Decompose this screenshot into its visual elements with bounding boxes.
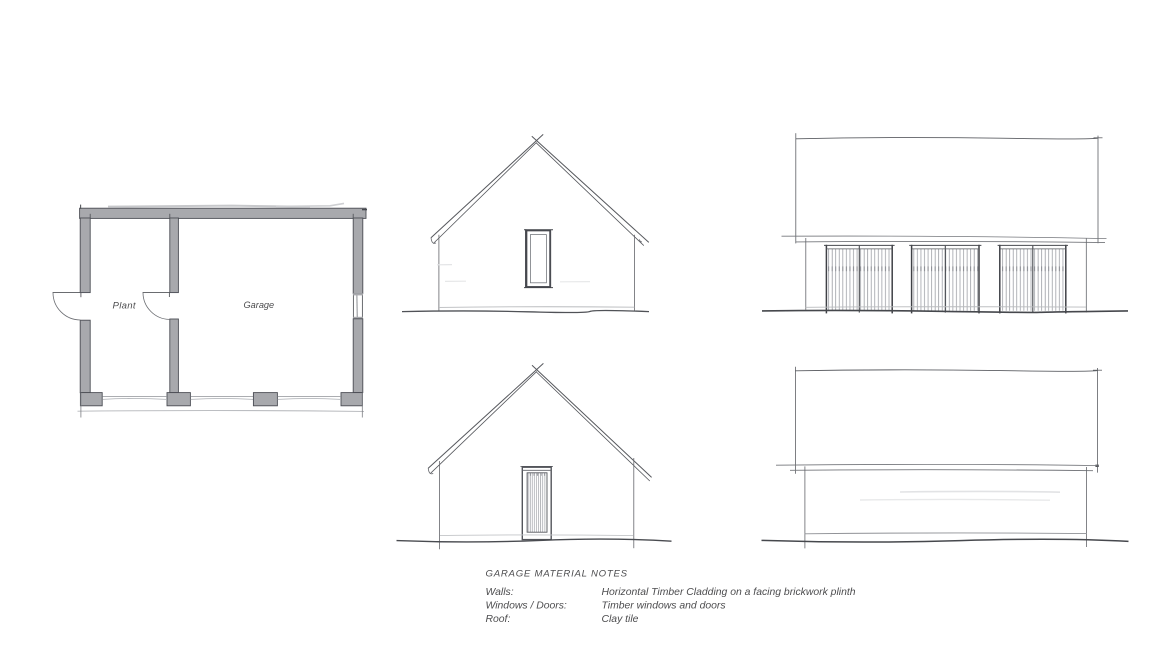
svg-text:GARAGE MATERIAL NOTES: GARAGE MATERIAL NOTES <box>486 569 628 580</box>
svg-text:Horizontal Timber Cladding on: Horizontal Timber Cladding on a facing b… <box>602 587 856 598</box>
svg-text:Walls:: Walls: <box>486 587 514 598</box>
svg-text:Plant: Plant <box>113 300 136 311</box>
svg-text:Roof:: Roof: <box>486 614 511 625</box>
svg-text:Windows / Doors:: Windows / Doors: <box>486 601 567 612</box>
svg-text:Clay tile: Clay tile <box>602 614 639 625</box>
svg-text:Garage: Garage <box>244 300 275 310</box>
svg-text:Timber windows and doors: Timber windows and doors <box>602 601 726 612</box>
